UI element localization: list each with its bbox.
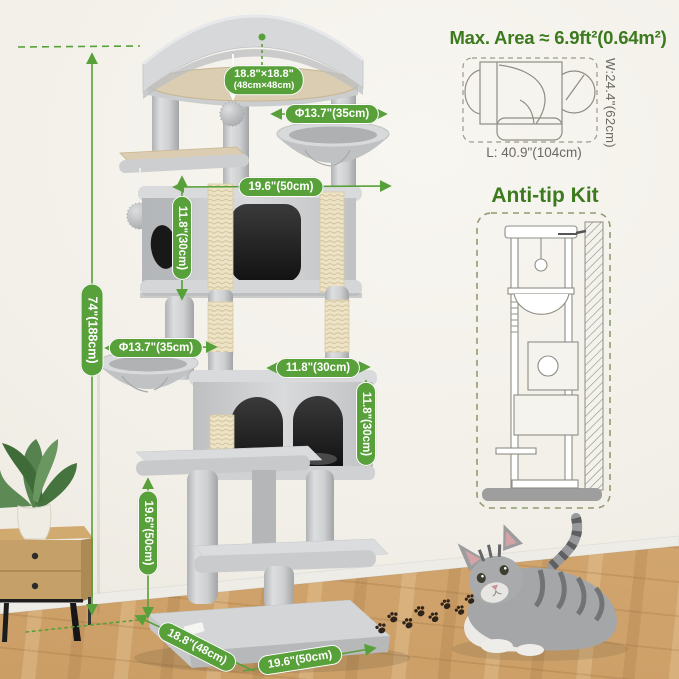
dim-total-height: 74"(188cm) <box>80 283 103 376</box>
dim-middle-width: 19.6"(50cm) <box>239 177 324 197</box>
post <box>264 566 294 610</box>
topview-length-label: L: 40.9"(104cm) <box>478 145 590 160</box>
potted-plant <box>0 439 77 539</box>
paw-print-icon <box>439 597 453 611</box>
top-measure-dot <box>259 34 266 41</box>
topview-width-label: W:24.4"(62cm) <box>603 58 618 148</box>
dim-upper-condo-height: 11.8"(30cm) <box>172 196 192 280</box>
product-infographic: Max. Area ≈ 6.9ft²(0.64m²) W:24.4"(62cm)… <box>0 0 679 679</box>
max-area-title: Max. Area ≈ 6.9ft²(0.64m²) <box>436 27 679 49</box>
hanging-ball <box>220 102 244 126</box>
paw-print-icon <box>401 616 415 630</box>
condo-opening <box>231 204 301 282</box>
anti-tip-tree-drawing <box>496 226 586 488</box>
floor-reference-dash <box>26 620 138 632</box>
dim-top-platform-cm: (48cm×48cm) <box>234 81 294 91</box>
upper-basket <box>277 121 389 166</box>
paw-print-icon <box>454 604 467 617</box>
scratching-post <box>208 184 233 290</box>
dim-lower-section-height: 19.6"(50cm) <box>138 491 158 576</box>
side-table <box>0 526 93 642</box>
paw-print-icon <box>386 611 399 624</box>
dim-top-platform-in: 18.8"×18.8" <box>234 68 294 80</box>
wall-hatch <box>585 222 603 490</box>
drawing-floor <box>482 488 602 501</box>
dim-top-basket-diameter: Φ13.7"(35cm) <box>285 104 379 124</box>
paw-print-icon <box>413 604 427 618</box>
dim-top-platform: 18.8"×18.8" (48cm×48cm) <box>224 65 304 95</box>
height-reference-dash <box>18 46 140 47</box>
dim-lower-condo-height: 11.8"(30cm) <box>356 382 376 466</box>
dim-lower-condo-width: 11.8"(30cm) <box>276 358 360 378</box>
top-view-diagram <box>463 58 597 142</box>
cat <box>452 518 628 661</box>
anti-tip-diagram <box>477 213 610 508</box>
scratching-post <box>320 192 344 292</box>
paw-print-icon <box>427 610 441 624</box>
anti-tip-title: Anti-tip Kit <box>460 184 630 208</box>
dim-lower-basket-diameter: Φ13.7"(35cm) <box>109 338 203 358</box>
paw-print-trail <box>374 593 476 635</box>
scratching-post <box>325 300 349 352</box>
